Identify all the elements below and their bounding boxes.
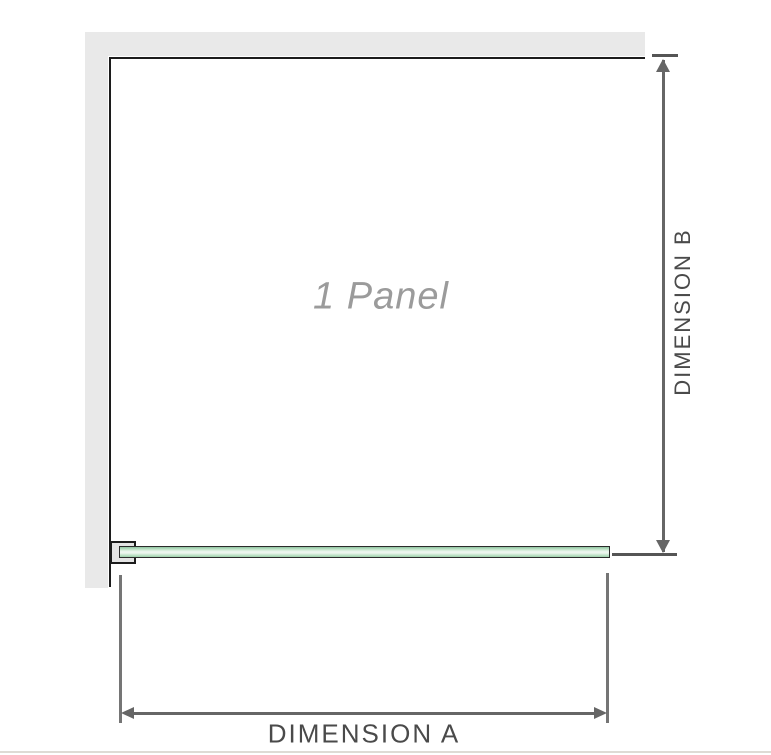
dimension-a-witness-line-left <box>119 575 122 723</box>
dimension-a-label: DIMENSION A <box>268 719 460 750</box>
dimension-b-tick-bottom <box>612 553 677 556</box>
arrow-up-icon <box>656 59 670 72</box>
dimension-a-witness-line-right <box>606 573 609 723</box>
wall-left-strip <box>85 32 108 588</box>
panel-configuration-diagram: 1 Panel DIMENSION B DIMENSION A <box>0 0 771 755</box>
dimension-a-line <box>127 712 601 715</box>
arrow-left-icon <box>121 707 134 719</box>
panel-label: 1 Panel <box>313 276 449 319</box>
arrow-right-icon <box>594 707 607 719</box>
dimension-b-label: DIMENSION B <box>670 228 696 395</box>
wall-top-band <box>85 32 645 56</box>
enclosure-top-edge <box>109 57 645 59</box>
enclosure-left-edge <box>109 57 111 587</box>
arrow-down-icon <box>656 540 670 553</box>
bottom-divider <box>0 751 771 753</box>
dimension-b-line <box>662 60 665 552</box>
glass-panel <box>119 546 610 558</box>
dimension-b-tick-top <box>652 54 678 57</box>
